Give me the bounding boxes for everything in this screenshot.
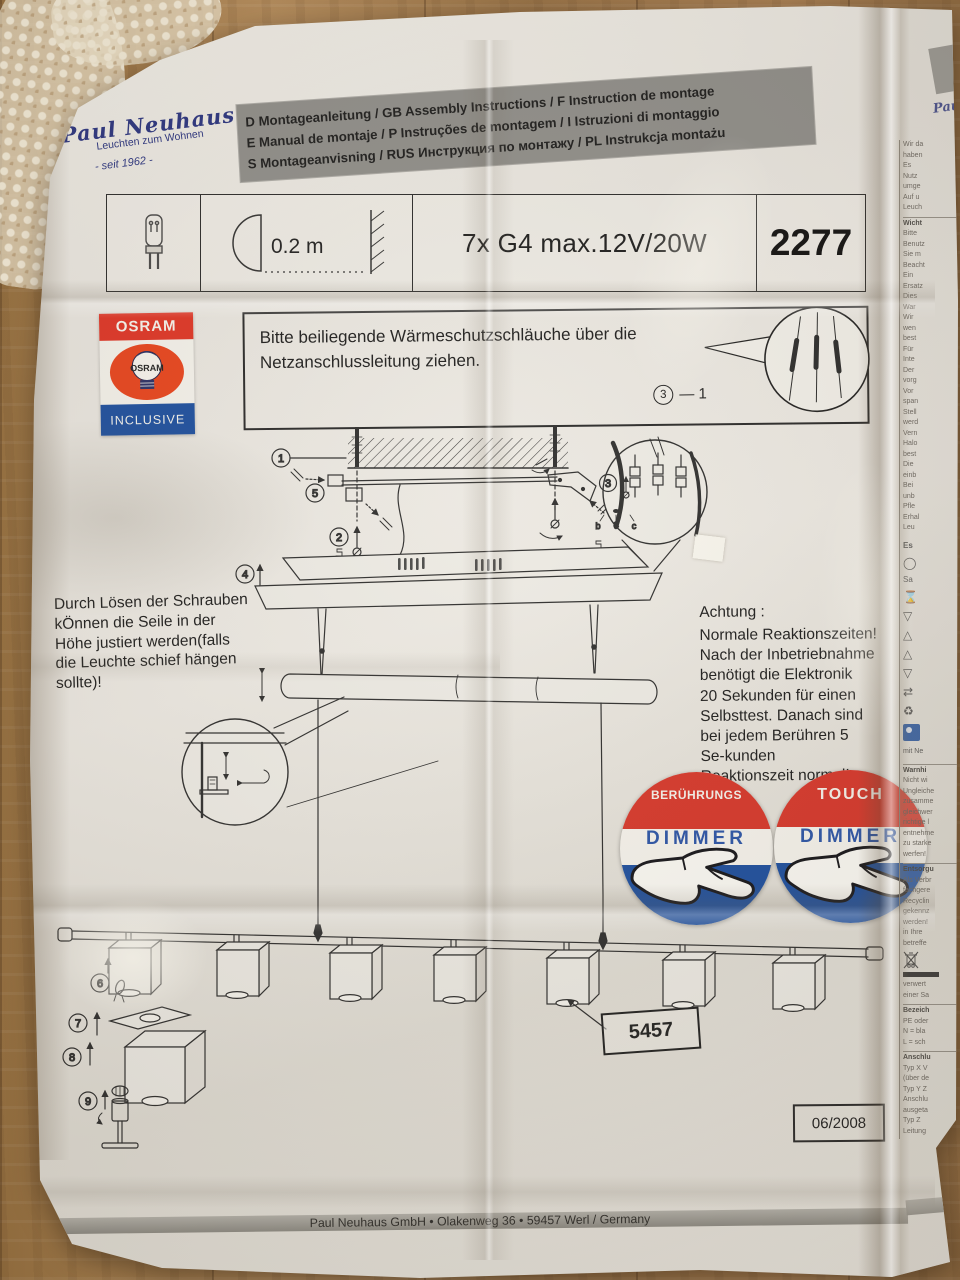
side-label: mit Ne: [903, 748, 960, 755]
terminal-b: b: [595, 521, 600, 531]
paper-surface: Paul Neuhaus Leuchten zum Wohnen - seit …: [0, 0, 960, 1280]
date-code-box: 06/2008: [793, 1104, 885, 1143]
side-label: Es: [903, 542, 960, 550]
osram-badge: OSRAM OSRAM INCLUSIVE: [99, 312, 195, 436]
folded-text-column: Wir da haben Es Nutz umge Auf u Leuch Wi…: [899, 140, 960, 1139]
suspension-cables: [318, 605, 598, 675]
step-6-label: 6: [97, 978, 103, 990]
osram-bulb-label: OSRAM: [130, 363, 164, 374]
arrows-icon: ⇄: [903, 686, 960, 698]
step-2-label: 2: [336, 532, 342, 544]
attention-body: Normale Reaktionszeiten! Nach der Inbetr…: [699, 624, 918, 787]
spec-table: 0.2 m 7x G4 max.12V/20W 2277: [106, 194, 866, 292]
sticker-top-label: BERÜHRUNGS: [620, 788, 773, 802]
divider-bar: [903, 972, 939, 977]
wall-distance-icon: 0.2 m: [221, 208, 393, 278]
symbol-column: Es ◯ Sa ⌛ ▽ △ △ ▽ ⇄ ♻ mit Ne: [903, 536, 960, 761]
side-text-block: Wir da haben Es Nutz umge Auf u Leuch: [903, 140, 960, 214]
part-number-box: 5457: [601, 1007, 702, 1056]
ceiling-hatch: [348, 438, 568, 468]
exploded-shade-cube: [63, 1031, 205, 1106]
footer-bar-fragment: [905, 1196, 960, 1216]
side-section-title: Warnhi: [903, 764, 960, 777]
triangle-down-icon: ▽: [903, 667, 960, 679]
side-text-block: verwert einer Sa: [903, 980, 960, 1001]
osram-top-band: OSRAM: [99, 312, 193, 341]
crossed-bin-icon: [903, 951, 919, 969]
side-text-block: Nicht wi Ungleiche zusamme gleichwer ric…: [903, 776, 960, 860]
lamp-head: [547, 943, 599, 1006]
wire-sleeve-callout: [696, 295, 907, 435]
tape-scrap: [693, 534, 726, 561]
drop-cables: [318, 700, 603, 895]
side-text-block: Als Verbr fachgere Recyclin gekennz werd…: [903, 876, 960, 950]
osram-bulb-emblem: OSRAM: [99, 339, 194, 405]
step-1-label: 1: [278, 453, 284, 465]
side-label: Sa: [903, 576, 960, 584]
step-4-label: 4: [242, 569, 248, 581]
night-mode-badge: [903, 724, 920, 741]
side-section-title: Wicht: [903, 217, 960, 230]
lamp-head: [663, 945, 715, 1008]
side-section-title: Bezeich: [903, 1004, 960, 1017]
mains-cable: [398, 485, 404, 555]
height-adjust-note: Durch Lösen der Schrauben kÖnnen die Sei…: [54, 589, 289, 694]
hourglass-icon: ⌛: [903, 591, 960, 603]
lamp-head: [109, 933, 161, 996]
side-section-title: Anschlu: [903, 1051, 960, 1064]
step-8-label: 8: [69, 1052, 75, 1064]
warning-triangle-icon: △: [903, 629, 960, 641]
side-section-title: Entsorgu: [903, 863, 960, 876]
heat-sleeve-note-box: Bitte beiliegende Wärmeschutzschläuche ü…: [242, 306, 869, 431]
folded-header-fragment: [928, 44, 960, 95]
circle-symbol-icon: ◯: [903, 557, 960, 569]
model-number: 2277: [770, 222, 852, 264]
lamp-head: [773, 948, 825, 1011]
step-7-label: 7: [75, 1018, 81, 1030]
photo-scene: Paul Neuhaus Leuchten zum Wohnen - seit …: [0, 0, 960, 1280]
step-3-detail-label: 3: [605, 478, 611, 490]
osram-bulb-icon: OSRAM: [105, 340, 188, 403]
footer-address: Paul Neuhaus GmbH • Olakenweg 36 • 59457…: [310, 1212, 651, 1230]
spec-cell-model: 2277: [757, 195, 865, 291]
side-text-block: Typ X V (über de Typ Y Z Anschlu ausgeta…: [903, 1064, 960, 1138]
mounting-rail: [291, 459, 611, 530]
spec-cell-lamps: 7x G4 max.12V/20W: [413, 195, 757, 291]
lamp-head: [434, 940, 486, 1003]
clamp-detail-circle: [182, 697, 438, 825]
spec-cell-bulb: [107, 195, 201, 291]
terminal-c: c: [632, 521, 637, 531]
lamp-head: [330, 938, 382, 1001]
g4-bulb-icon: [132, 211, 176, 275]
warning-triangle-icon: △: [903, 648, 960, 660]
side-text-block: Bitte Benutz Sie m Beacht Ein Ersatz Die…: [903, 229, 960, 534]
recycle-icon: ♻: [903, 705, 960, 717]
step-5-label: 5: [312, 488, 318, 500]
side-text-block: PE oder N = bla L = sch: [903, 1017, 960, 1049]
attention-note: Achtung : Normale Reaktionszeiten! Nach …: [699, 601, 919, 787]
lamp-spec: 7x G4 max.12V/20W: [462, 228, 707, 259]
instruction-sheet: Paul Neuhaus Leuchten zum Wohnen - seit …: [0, 0, 960, 1280]
spec-cell-distance: 0.2 m: [201, 195, 413, 291]
lamp-bar-diagram: 6 7 8: [50, 895, 920, 1195]
heat-sleeve-note-text: Bitte beiliegende Wärmeschutzschläuche ü…: [260, 322, 638, 375]
folded-logo-fragment: Pau: [932, 98, 960, 117]
horizontal-tube: [262, 673, 657, 704]
attention-title: Achtung :: [699, 601, 917, 623]
bar-suspension: [314, 895, 607, 949]
brand-logo: Paul Neuhaus Leuchten zum Wohnen - seit …: [59, 101, 244, 177]
ceiling-canopy: [255, 541, 662, 609]
footer-address-bar: Paul Neuhaus GmbH • Olakenweg 36 • 59457…: [52, 1208, 908, 1234]
step-3-badge: 3: [653, 385, 673, 405]
lamp-head: [217, 935, 269, 998]
triangle-down-icon: ▽: [903, 610, 960, 622]
distance-value: 0.2 m: [271, 235, 324, 258]
terminal-a: a: [613, 519, 618, 529]
language-header-bar: D Montageanleitung / GB Assembly Instruc…: [236, 67, 815, 182]
step-9-label: 9: [85, 1096, 91, 1108]
